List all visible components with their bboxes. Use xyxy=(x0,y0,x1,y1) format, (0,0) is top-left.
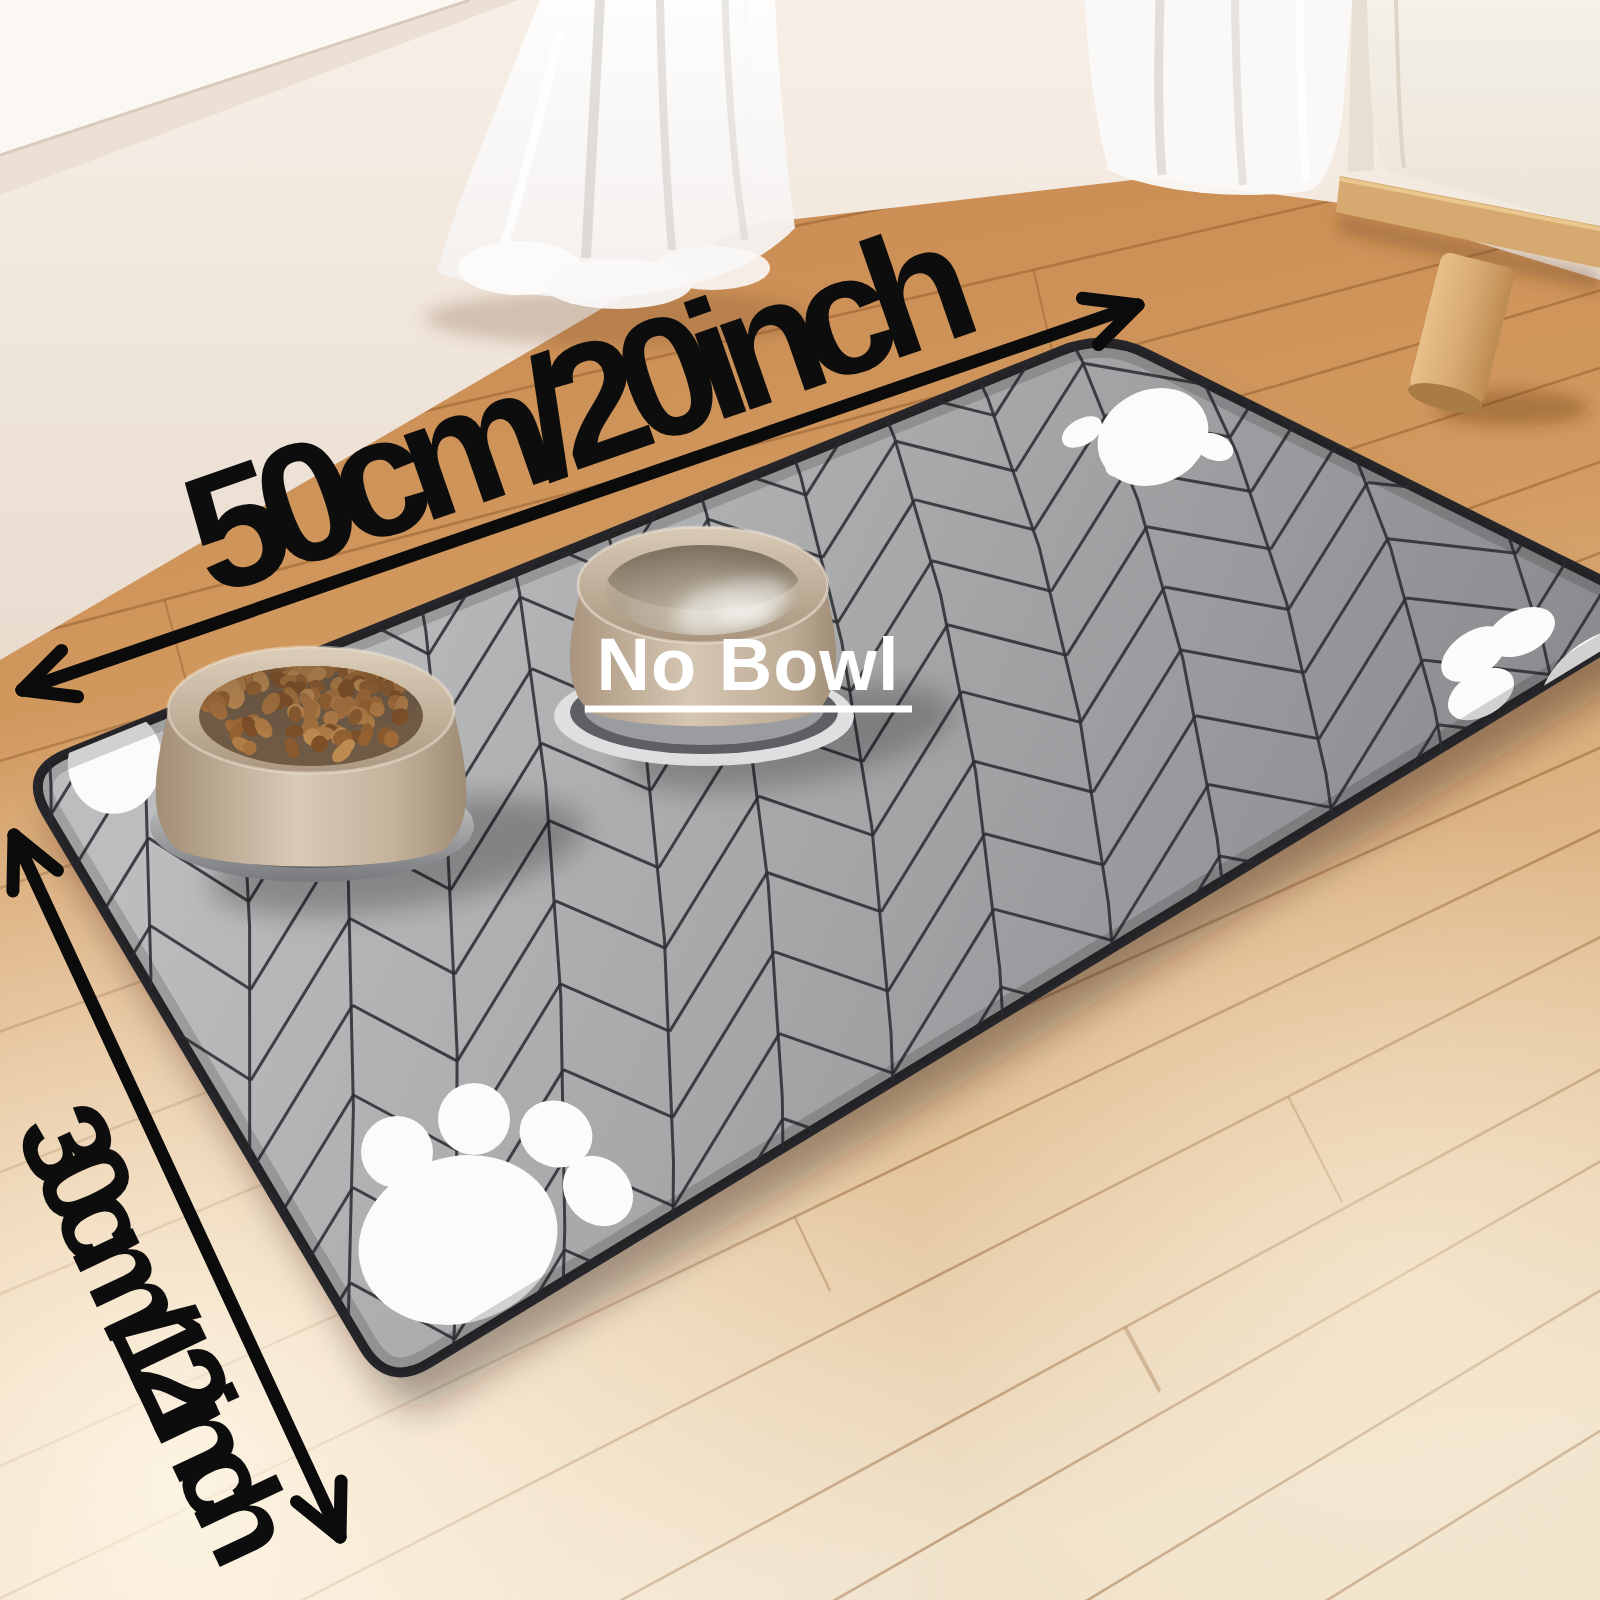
water-highlight-core xyxy=(717,601,773,623)
pet-feeding-mat-scene: No Bowl 50cm/20inch 30cm/12inch xyxy=(0,0,1600,1600)
no-bowl-label: No Bowl xyxy=(597,623,900,706)
no-bowl-label-group: No Bowl xyxy=(585,623,912,709)
curtain-right xyxy=(1085,0,1352,195)
curtain-fabric xyxy=(1085,0,1352,195)
paw-print-icon xyxy=(361,1116,433,1188)
curtain-fold xyxy=(1159,0,1162,175)
paw-print-icon xyxy=(438,1083,510,1155)
product-photo: No Bowl 50cm/20inch 30cm/12inch xyxy=(0,0,1600,1600)
